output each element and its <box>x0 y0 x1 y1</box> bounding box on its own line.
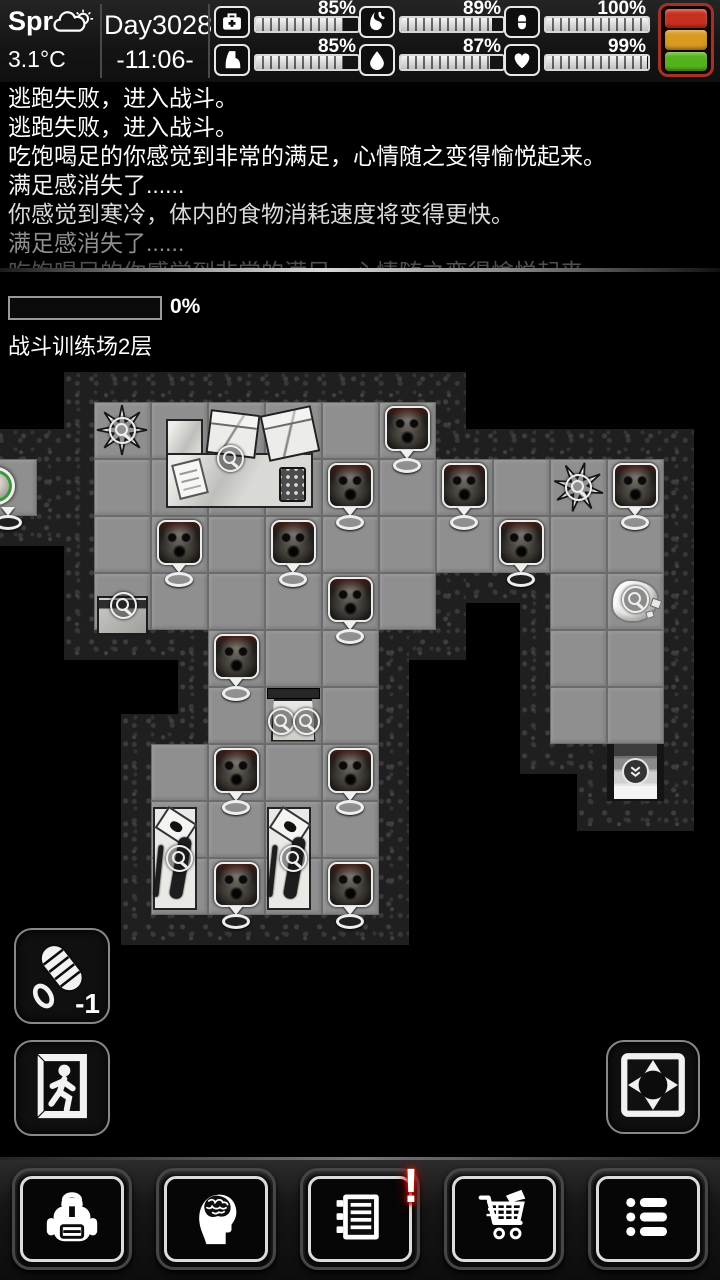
nav-shop-button[interactable] <box>444 1168 564 1270</box>
backpack-icon <box>39 1186 105 1253</box>
small-table[interactable] <box>265 687 322 744</box>
floor-tile[interactable] <box>379 573 436 630</box>
floor-tile[interactable] <box>265 744 322 801</box>
zombie-pointer-ring <box>336 914 364 929</box>
log-line: 满足感消失了...... <box>0 229 720 258</box>
zombie-portrait <box>442 463 487 508</box>
zombie-pointer-ring <box>222 914 250 929</box>
header-divider <box>208 4 210 78</box>
search-icon[interactable] <box>268 708 295 735</box>
stat-medicine-bar <box>544 16 650 33</box>
log-line: 逃跑失败，进入战斗。 <box>0 84 720 113</box>
office-desk[interactable] <box>151 402 322 516</box>
floor-tile[interactable] <box>322 402 379 459</box>
floor-tile[interactable] <box>550 630 607 687</box>
floor-tile[interactable] <box>550 516 607 573</box>
zombie[interactable] <box>607 459 664 516</box>
zombie[interactable] <box>322 459 379 516</box>
compass-arrows-icon <box>613 1045 693 1130</box>
floor-tile[interactable] <box>550 573 607 630</box>
temperature-label: 3.1°C <box>8 46 66 73</box>
zombie-portrait <box>499 520 544 565</box>
alert-badge: ! <box>403 1159 419 1214</box>
stairs-down[interactable] <box>607 744 664 801</box>
move-pad-button[interactable] <box>606 1040 700 1134</box>
list-icon <box>618 1188 678 1251</box>
spiky-plant[interactable] <box>550 459 607 516</box>
boot-icon <box>214 44 250 76</box>
zombie[interactable] <box>265 516 322 573</box>
zombie[interactable] <box>493 516 550 573</box>
nav-button-ring <box>20 1176 124 1262</box>
status-light-segment <box>665 9 707 28</box>
stat-hydration-bar <box>399 54 505 71</box>
stat-satiety-bar <box>399 16 505 33</box>
rope-item-button[interactable]: -1 <box>14 928 110 1024</box>
nav-button-ring <box>164 1176 268 1262</box>
zombie-portrait <box>214 748 259 793</box>
nav-journal-button[interactable]: ! <box>300 1168 420 1270</box>
floor-tile[interactable] <box>94 516 151 573</box>
log-line: 满足感消失了...... <box>0 171 720 200</box>
zombie-pointer-ring <box>165 572 193 587</box>
zombie-portrait <box>328 577 373 622</box>
zombie-portrait <box>328 862 373 907</box>
zombie-portrait <box>214 862 259 907</box>
floor-tile[interactable] <box>322 687 379 744</box>
weather-icon <box>52 8 94 40</box>
stat-hydration: 87% <box>359 38 501 76</box>
log-line: 你感觉到寒冷，体内的食物消耗速度将变得更快。 <box>0 200 720 229</box>
supply-crate[interactable] <box>94 573 151 630</box>
cloth-fragment <box>645 610 655 619</box>
zombie-pointer-ring <box>450 515 478 530</box>
zombie-portrait <box>613 463 658 508</box>
drop-icon <box>359 44 395 76</box>
zombie-portrait <box>328 748 373 793</box>
gun-desk[interactable] <box>151 801 208 915</box>
zombie-pointer-ring <box>222 800 250 815</box>
zombie-portrait <box>328 463 373 508</box>
season-label: Spr <box>8 6 53 37</box>
cloth-pile[interactable] <box>607 573 664 630</box>
cardboard-box <box>259 405 320 462</box>
status-light-segment <box>665 30 707 49</box>
game-screen: 战斗训练场2层 0% 逃跑失败，进入战斗。逃跑失败，进入战斗。吃饱喝足的你感觉到… <box>0 0 720 1280</box>
zombie[interactable] <box>322 744 379 801</box>
zombie[interactable] <box>322 573 379 630</box>
header-divider <box>100 4 102 78</box>
nav-button-ring <box>308 1176 412 1262</box>
nav-menu-button[interactable] <box>588 1168 708 1270</box>
stomach-icon <box>359 6 395 38</box>
head-brain-icon <box>185 1186 247 1253</box>
zombie[interactable] <box>208 858 265 915</box>
stairs-down-icon <box>622 758 649 785</box>
clock: -11:06- <box>104 46 206 75</box>
exit-door-icon <box>24 1048 100 1129</box>
nav-button-ring <box>452 1176 556 1262</box>
zombie-portrait <box>385 406 430 451</box>
player-face <box>0 467 15 505</box>
spiky-plant[interactable] <box>94 402 151 459</box>
nav-inventory-button[interactable] <box>12 1168 132 1270</box>
zombie[interactable] <box>379 402 436 459</box>
search-icon[interactable] <box>217 445 244 472</box>
floor-tile[interactable] <box>94 459 151 516</box>
zombie-pointer-ring <box>336 629 364 644</box>
floor-tile[interactable] <box>607 630 664 687</box>
message-log[interactable]: 逃跑失败，进入战斗。逃跑失败，进入战斗。吃饱喝足的你感觉到非常的满足，心情随之变… <box>0 84 720 268</box>
search-icon[interactable] <box>166 845 193 872</box>
stat-stamina-bar <box>254 54 360 71</box>
zombie-pointer-ring <box>336 800 364 815</box>
stat-mood-bar <box>544 54 650 71</box>
zombie-pointer-ring <box>222 686 250 701</box>
pill-icon <box>504 6 540 38</box>
zombie-pointer-ring <box>507 572 535 587</box>
floor-tile[interactable] <box>379 516 436 573</box>
zombie[interactable] <box>208 630 265 687</box>
status-light <box>658 3 714 77</box>
floor-tile[interactable] <box>550 687 607 744</box>
zombie-pointer-ring <box>393 458 421 473</box>
cart-icon <box>473 1186 535 1253</box>
zombie-pointer-ring <box>279 572 307 587</box>
stat-medicine: 100% <box>504 0 646 38</box>
search-icon[interactable] <box>293 708 320 735</box>
status-light-segment <box>665 52 707 71</box>
log-line: 吃饱喝足的你感觉到非常的满足，心情随之变得愉悦起来 <box>0 258 720 268</box>
log-line: 吃饱喝足的你感觉到非常的满足，心情随之变得愉悦起来。 <box>0 142 720 171</box>
status-bar: Spr 3.1°C Day3028 -11:06- 85%85%89%87%10… <box>0 0 720 84</box>
zombie-pointer-ring <box>336 515 364 530</box>
map-title: 战斗训练场2层 <box>8 329 152 361</box>
gun-desk[interactable] <box>265 801 322 915</box>
search-icon[interactable] <box>622 586 649 613</box>
floor-tile[interactable] <box>151 744 208 801</box>
bottom-nav: ! <box>0 1160 720 1280</box>
zombie-portrait <box>157 520 202 565</box>
nav-button-ring <box>596 1176 700 1262</box>
zombie[interactable] <box>322 858 379 915</box>
heart-icon <box>504 44 540 76</box>
search-icon[interactable] <box>110 592 137 619</box>
search-icon[interactable] <box>280 845 307 872</box>
leave-map-button[interactable] <box>14 1040 110 1136</box>
stat-health: 85% <box>214 0 356 38</box>
stat-satiety: 89% <box>359 0 501 38</box>
stat-health-bar <box>254 16 360 33</box>
floor-tile[interactable] <box>493 459 550 516</box>
day-counter: Day3028 <box>104 10 206 41</box>
desk-phone <box>279 467 306 502</box>
table-edge <box>267 688 320 699</box>
floor-tile[interactable] <box>208 573 265 630</box>
zombie[interactable] <box>436 459 493 516</box>
floor-tile[interactable] <box>265 630 322 687</box>
floor-tile[interactable] <box>607 687 664 744</box>
stat-stamina: 85% <box>214 38 356 76</box>
floor-tile[interactable] <box>208 516 265 573</box>
player-avatar[interactable] <box>0 459 37 516</box>
nav-character-button[interactable] <box>156 1168 276 1270</box>
rope-count-label: -1 <box>75 988 100 1020</box>
medkit-icon <box>214 6 250 38</box>
journal-icon <box>330 1187 390 1252</box>
search-icon[interactable] <box>565 474 592 501</box>
log-line: 逃跑失败，进入战斗。 <box>0 113 720 142</box>
zombie-portrait <box>271 520 316 565</box>
zombie[interactable] <box>151 516 208 573</box>
zombie-portrait <box>214 634 259 679</box>
zombie-pointer-ring <box>621 515 649 530</box>
log-divider <box>0 268 720 272</box>
stat-mood: 99% <box>504 38 646 76</box>
search-icon[interactable] <box>109 417 136 444</box>
zombie[interactable] <box>208 744 265 801</box>
